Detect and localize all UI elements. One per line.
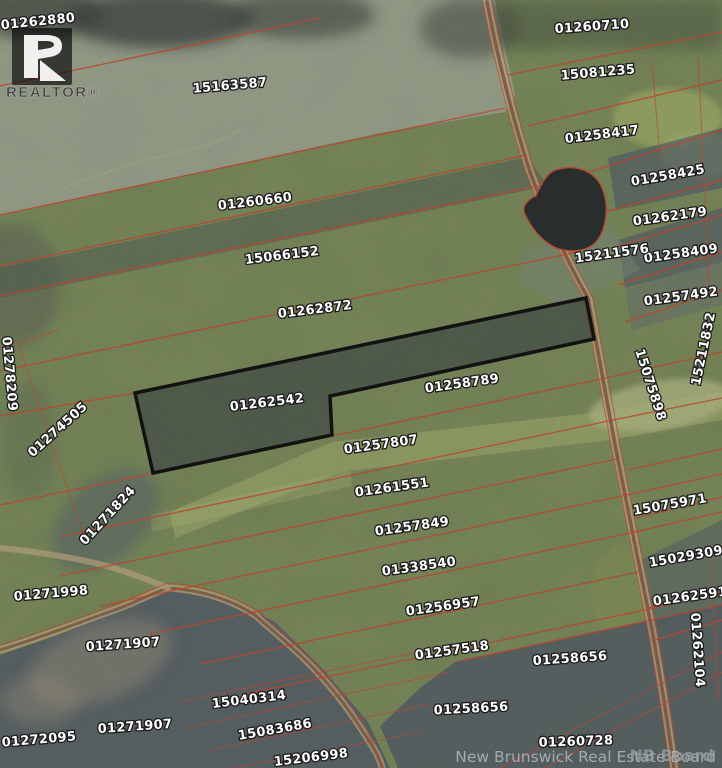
mls-parcel-map-screenshot: 0126288015163587012607101508123501258417…: [0, 0, 722, 768]
realtor-wordmark: REALTOR®: [6, 84, 100, 101]
watermark-overlay: NB Board: [630, 746, 714, 765]
satellite-parcel-map: 0126288015163587012607101508123501258417…: [0, 0, 722, 768]
